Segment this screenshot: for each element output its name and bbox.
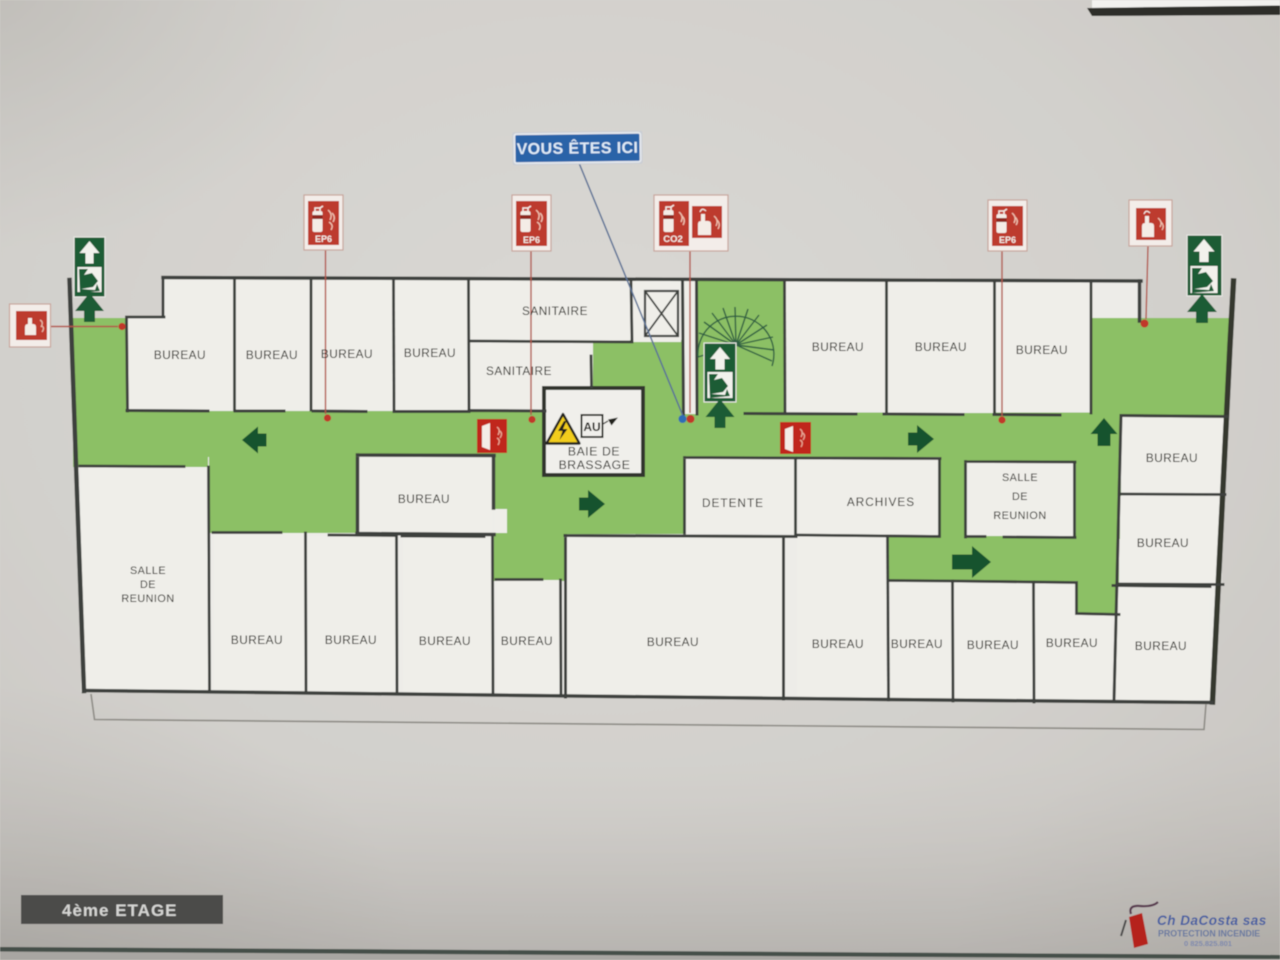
svg-text:BUREAU: BUREAU bbox=[419, 634, 471, 648]
svg-text:BUREAU: BUREAU bbox=[231, 633, 283, 647]
svg-text:EP6: EP6 bbox=[523, 235, 540, 245]
svg-text:BUREAU: BUREAU bbox=[1046, 636, 1098, 650]
svg-text:BUREAU: BUREAU bbox=[398, 492, 450, 506]
svg-text:BUREAU: BUREAU bbox=[154, 348, 206, 362]
svg-text:BUREAU: BUREAU bbox=[1016, 343, 1068, 357]
svg-text:BUREAU: BUREAU bbox=[1146, 451, 1198, 465]
svg-text:DE: DE bbox=[1012, 491, 1028, 503]
svg-text:REUNION: REUNION bbox=[121, 593, 174, 605]
svg-text:BUREAU: BUREAU bbox=[647, 635, 699, 649]
svg-text:SANITAIRE: SANITAIRE bbox=[522, 304, 588, 318]
svg-text:BUREAU: BUREAU bbox=[915, 340, 967, 354]
svg-text:CO2: CO2 bbox=[663, 234, 683, 245]
svg-text:BUREAU: BUREAU bbox=[967, 638, 1019, 652]
svg-text:EP6: EP6 bbox=[999, 235, 1016, 245]
svg-text:EP6: EP6 bbox=[315, 234, 332, 244]
svg-text:0 825.825.801: 0 825.825.801 bbox=[1184, 939, 1232, 948]
svg-text:DETENTE: DETENTE bbox=[702, 496, 764, 510]
svg-text:BUREAU: BUREAU bbox=[501, 634, 553, 648]
svg-text:BUREAU: BUREAU bbox=[1137, 536, 1189, 550]
svg-text:SANITAIRE: SANITAIRE bbox=[486, 364, 552, 378]
svg-text:BAIE DE: BAIE DE bbox=[568, 445, 620, 459]
svg-text:BUREAU: BUREAU bbox=[246, 348, 298, 362]
svg-text:SALLE: SALLE bbox=[1002, 472, 1038, 484]
svg-text:PROTECTION INCENDIE: PROTECTION INCENDIE bbox=[1158, 929, 1260, 939]
svg-text:BUREAU: BUREAU bbox=[891, 637, 943, 651]
svg-text:4ème ETAGE: 4ème ETAGE bbox=[62, 901, 178, 920]
svg-text:BUREAU: BUREAU bbox=[321, 347, 373, 361]
svg-text:BUREAU: BUREAU bbox=[812, 637, 864, 651]
svg-text:Ch DaCosta sas: Ch DaCosta sas bbox=[1157, 913, 1267, 928]
svg-text:BUREAU: BUREAU bbox=[404, 346, 456, 360]
svg-text:BRASSAGE: BRASSAGE bbox=[559, 458, 631, 472]
svg-text:AU: AU bbox=[583, 420, 600, 434]
svg-text:SALLE: SALLE bbox=[130, 565, 166, 577]
svg-text:BUREAU: BUREAU bbox=[325, 633, 377, 647]
svg-text:BUREAU: BUREAU bbox=[1135, 639, 1187, 653]
svg-text:BUREAU: BUREAU bbox=[812, 340, 864, 354]
svg-text:REUNION: REUNION bbox=[993, 510, 1046, 522]
svg-text:ARCHIVES: ARCHIVES bbox=[847, 495, 915, 509]
svg-text:DE: DE bbox=[140, 579, 156, 591]
svg-text:VOUS ÊTES ICI: VOUS ÊTES ICI bbox=[517, 138, 639, 158]
